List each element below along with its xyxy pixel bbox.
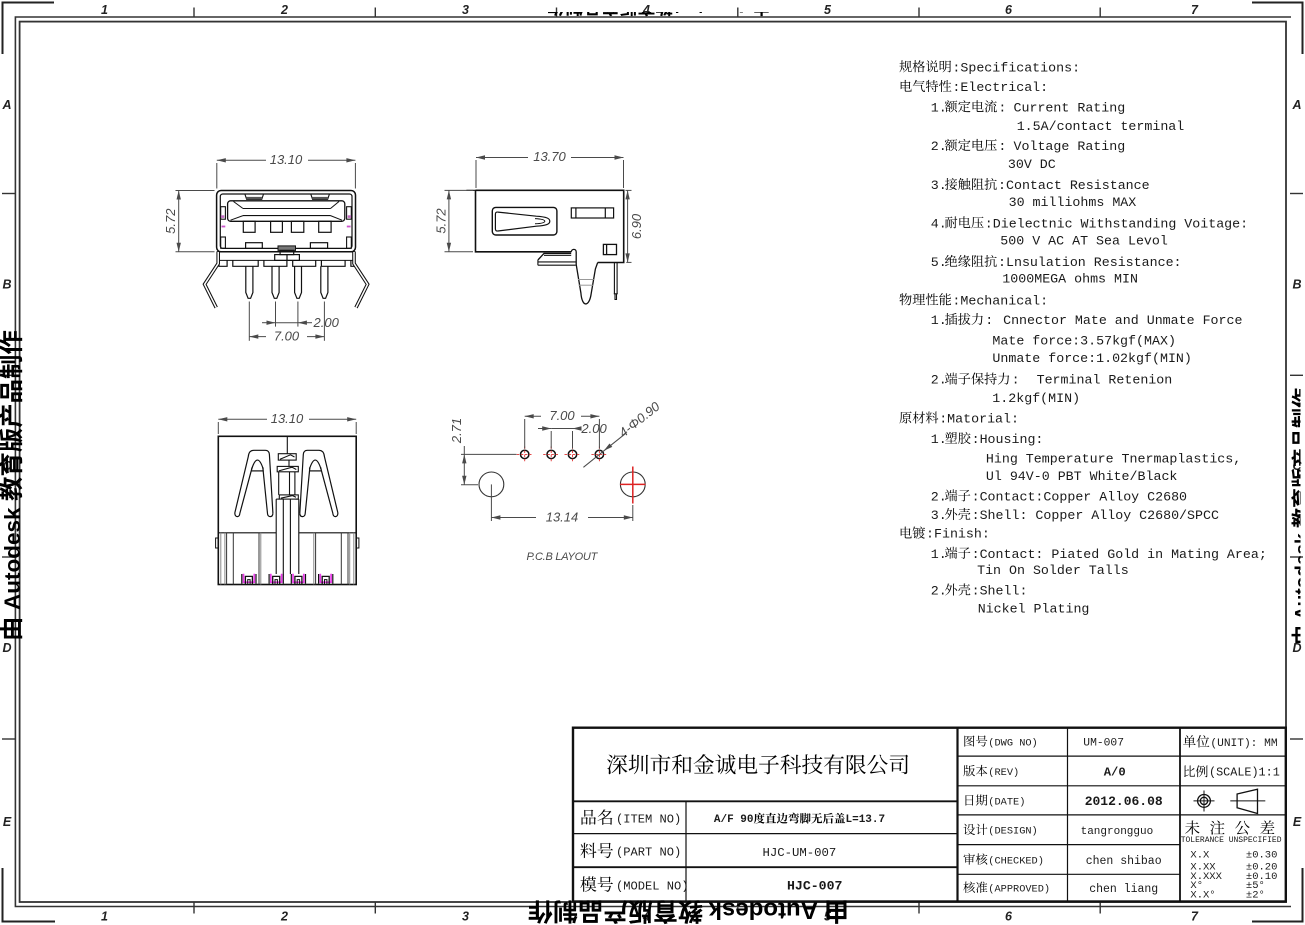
svg-text:Terminal Retenion: Terminal Retenion (1037, 373, 1173, 388)
svg-text:2.71: 2.71 (449, 418, 464, 444)
svg-text:(PART NO): (PART NO) (616, 846, 681, 860)
svg-text:4.: 4. (931, 216, 947, 231)
svg-text:(REV): (REV) (988, 767, 1019, 779)
svg-text::Housing:: :Housing: (972, 432, 1044, 447)
svg-text:A/0: A/0 (1104, 766, 1126, 780)
svg-text:3: 3 (462, 3, 469, 17)
svg-text:X.X°: X.X° (1190, 890, 1215, 902)
svg-text:3.: 3. (931, 508, 947, 523)
svg-text:2.: 2. (931, 584, 947, 599)
svg-text:1: 1 (101, 910, 108, 924)
svg-text:TOLERANCE UNSPECIFIED: TOLERANCE UNSPECIFIED (1181, 836, 1282, 845)
svg-text:2: 2 (280, 910, 288, 924)
svg-text:±2°: ±2° (1246, 890, 1265, 902)
svg-text::Lnsulation Resistance:: :Lnsulation Resistance: (998, 255, 1182, 270)
svg-text:1: 1 (101, 3, 108, 17)
svg-text:2012.06.08: 2012.06.08 (1085, 794, 1163, 809)
svg-text:13.70: 13.70 (533, 149, 566, 164)
svg-text:30 milliohms MAX: 30 milliohms MAX (1009, 195, 1137, 210)
svg-text:E: E (3, 815, 12, 829)
svg-text:1.5A/contact terminal: 1.5A/contact terminal (1017, 119, 1185, 134)
svg-text:±0.30: ±0.30 (1246, 850, 1278, 862)
svg-text:500 V AC AT Sea Levol: 500 V AC AT Sea Levol (1000, 233, 1168, 248)
svg-text:7: 7 (1191, 910, 1199, 924)
svg-text:(ITEM NO): (ITEM NO) (616, 812, 681, 826)
svg-text::: : (998, 139, 1006, 154)
svg-text:Nickel Plating: Nickel Plating (978, 601, 1090, 616)
svg-text:(UNIT): MM: (UNIT): MM (1210, 738, 1277, 750)
svg-text:5: 5 (824, 3, 832, 17)
svg-text:Current Rating: Current Rating (1014, 100, 1126, 115)
svg-text:(SCALE)1:1: (SCALE)1:1 (1209, 766, 1280, 780)
svg-text:5.: 5. (931, 255, 947, 270)
svg-text:2.: 2. (931, 373, 947, 388)
svg-text:1.: 1. (931, 313, 947, 328)
svg-text:1.2kgf(MIN): 1.2kgf(MIN) (992, 391, 1080, 406)
svg-text:2: 2 (280, 3, 288, 17)
svg-text:7: 7 (1191, 3, 1199, 17)
svg-text:Autodesk: Autodesk (0, 507, 25, 610)
svg-text:7.00: 7.00 (549, 408, 575, 423)
svg-text::Contact: Piated Gold in Matin: :Contact: Piated Gold in Mating Area; (972, 547, 1267, 562)
svg-text:5.72: 5.72 (433, 208, 448, 234)
svg-text:D: D (1292, 641, 1301, 655)
svg-text:B: B (2, 278, 11, 292)
svg-text:E: E (1293, 815, 1302, 829)
svg-text::: : (1012, 373, 1020, 388)
svg-text::: : (985, 313, 993, 328)
svg-text:A: A (1, 98, 11, 112)
svg-text:Voltage Rating: Voltage Rating (1014, 139, 1126, 154)
svg-text::Dielectnic Withstanding Voita: :Dielectnic Withstanding Voitage: (985, 216, 1248, 231)
svg-text:2.00: 2.00 (313, 315, 340, 330)
svg-text:(MODEL NO): (MODEL NO) (616, 879, 689, 893)
svg-text:Ul 94V-0 PBT White/Black: Ul 94V-0 PBT White/Black (986, 469, 1178, 484)
svg-text:L=13.7: L=13.7 (846, 814, 886, 826)
svg-text:(APPROVED): (APPROVED) (988, 884, 1050, 896)
svg-text:1.: 1. (931, 547, 947, 562)
svg-text:1.: 1. (931, 432, 947, 447)
svg-text::Contact Resistance: :Contact Resistance (998, 178, 1150, 193)
svg-text:30V DC: 30V DC (1008, 157, 1056, 172)
svg-text::Specifications:: :Specifications: (952, 60, 1080, 75)
svg-text::Matorial:: :Matorial: (939, 412, 1019, 427)
svg-text:chen shibao: chen shibao (1086, 855, 1162, 868)
svg-text:tangrongguo: tangrongguo (1081, 826, 1154, 838)
svg-text:X.X: X.X (1190, 850, 1210, 862)
svg-text:2.: 2. (931, 139, 947, 154)
svg-text:A/F 90: A/F 90 (714, 814, 754, 826)
svg-text:Autodesk: Autodesk (708, 897, 818, 924)
svg-text:1.: 1. (931, 100, 947, 115)
svg-text:Unmate force:1.02kgf(MIN): Unmate force:1.02kgf(MIN) (992, 351, 1192, 366)
svg-text:1000MEGA ohms MIN: 1000MEGA ohms MIN (1002, 272, 1138, 287)
svg-text:P.C.B LAYOUT: P.C.B LAYOUT (527, 551, 599, 563)
svg-text:Tin On Solder Talls: Tin On Solder Talls (977, 563, 1129, 578)
svg-text:6: 6 (1005, 3, 1013, 17)
svg-text:7.00: 7.00 (274, 328, 300, 343)
svg-text:3: 3 (462, 910, 469, 924)
svg-text:5.72: 5.72 (163, 208, 178, 234)
svg-text:HJC-007: HJC-007 (787, 879, 842, 894)
svg-text::Shell:: :Shell: (972, 584, 1028, 599)
svg-text::Finish:: :Finish: (926, 527, 990, 542)
svg-text:6: 6 (1005, 910, 1013, 924)
svg-text:Mate force:3.57kgf(MAX): Mate force:3.57kgf(MAX) (992, 334, 1176, 349)
svg-text:Hing Temperature Tnermaplasti: Hing Temperature Tnermaplastics, (986, 451, 1241, 466)
svg-text::Mechanical:: :Mechanical: (952, 293, 1048, 308)
svg-text:3.: 3. (931, 178, 947, 193)
svg-text:2.00: 2.00 (580, 421, 607, 436)
svg-text:(DWG NO): (DWG NO) (988, 737, 1037, 749)
svg-text::Electrical:: :Electrical: (952, 80, 1048, 95)
svg-text:D: D (2, 641, 11, 655)
svg-text:(DATE): (DATE) (988, 796, 1025, 808)
svg-text:13.10: 13.10 (270, 152, 303, 167)
svg-text::Contact:Copper Alloy C2680: :Contact:Copper Alloy C2680 (972, 489, 1187, 504)
svg-text:A: A (1291, 98, 1301, 112)
svg-text:6.90: 6.90 (629, 213, 644, 239)
svg-text:(CHECKED): (CHECKED) (988, 855, 1044, 867)
svg-text:B: B (1292, 278, 1301, 292)
svg-text:UM-007: UM-007 (1083, 738, 1124, 750)
svg-text::: : (998, 100, 1006, 115)
svg-text::Shell: Copper Alloy C2680/SPC: :Shell: Copper Alloy C2680/SPCC (972, 508, 1219, 523)
svg-text:13.14: 13.14 (546, 509, 579, 524)
svg-text:chen liang: chen liang (1089, 883, 1158, 896)
svg-text:HJC-UM-007: HJC-UM-007 (763, 846, 837, 860)
svg-text:(DESIGN): (DESIGN) (988, 826, 1037, 838)
svg-text:13.10: 13.10 (271, 411, 304, 426)
svg-text:Cnnector Mate and Unmate Force: Cnnector Mate and Unmate Force (1003, 313, 1242, 328)
svg-text:2.: 2. (931, 489, 947, 504)
